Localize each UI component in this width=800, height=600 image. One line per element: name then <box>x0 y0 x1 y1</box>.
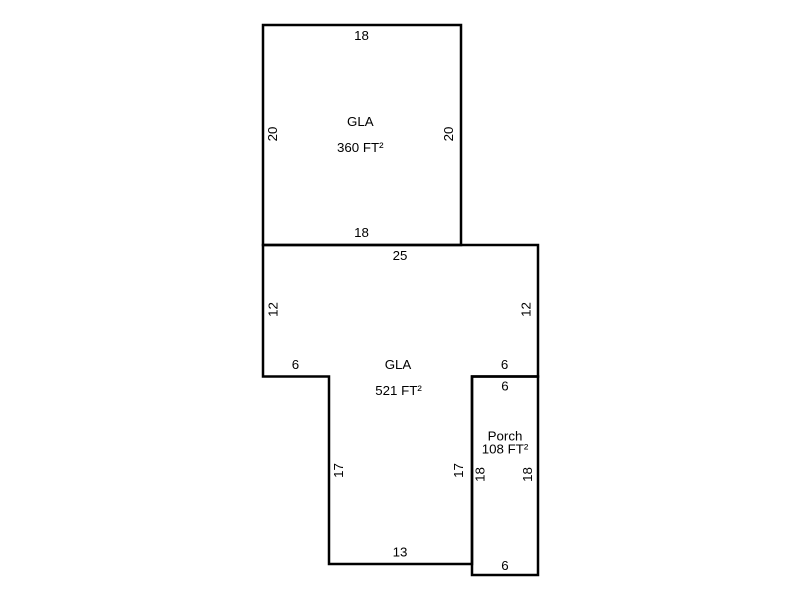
svg-text:12: 12 <box>266 302 281 317</box>
svg-text:GLA: GLA <box>347 114 374 129</box>
svg-text:25: 25 <box>393 248 408 263</box>
svg-text:18: 18 <box>473 467 488 482</box>
svg-text:6: 6 <box>501 357 508 372</box>
svg-text:6: 6 <box>292 357 299 372</box>
svg-text:20: 20 <box>441 127 456 142</box>
svg-text:521 FT²: 521 FT² <box>375 383 422 398</box>
svg-text:6: 6 <box>501 558 508 573</box>
svg-text:18: 18 <box>354 225 369 240</box>
svg-text:18: 18 <box>520 467 535 482</box>
svg-text:12: 12 <box>519 302 534 317</box>
svg-text:360 FT²: 360 FT² <box>337 140 384 155</box>
svg-text:108 FT²: 108 FT² <box>482 441 529 456</box>
svg-text:17: 17 <box>451 463 466 478</box>
svg-text:20: 20 <box>265 127 280 142</box>
svg-text:18: 18 <box>354 28 369 43</box>
svg-text:6: 6 <box>501 379 508 394</box>
svg-text:13: 13 <box>393 544 408 559</box>
svg-text:GLA: GLA <box>385 357 412 372</box>
svg-text:17: 17 <box>331 463 346 478</box>
